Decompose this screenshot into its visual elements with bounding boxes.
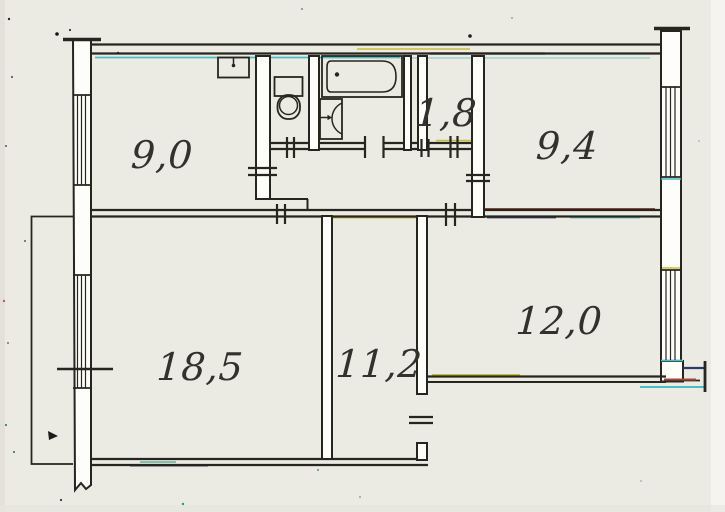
room-label-living-room: 18,5 xyxy=(156,348,245,386)
door-room-11-2 xyxy=(409,417,433,423)
room-label-room-12-0: 12,0 xyxy=(515,302,604,340)
room-label-bedroom-1: 9,4 xyxy=(535,127,599,165)
scan-color-fringes xyxy=(95,45,655,466)
door-living-room xyxy=(277,204,285,224)
balcony-outline xyxy=(32,217,74,465)
kitchen-sink-icon xyxy=(218,58,249,78)
wall-11-2-12-0-lower xyxy=(417,443,427,460)
bathtub-icon xyxy=(322,56,402,97)
floor-plan-svg xyxy=(0,0,725,512)
room-label-storage: 1,8 xyxy=(414,94,478,132)
washbasin-icon xyxy=(320,99,342,139)
window-balcony xyxy=(57,275,113,388)
smudge-mark xyxy=(48,431,58,440)
door-room-12-0 xyxy=(446,203,455,226)
wall-storage-right xyxy=(472,56,484,217)
room-label-kitchen: 9,0 xyxy=(130,136,194,174)
noise-specks xyxy=(3,8,700,505)
room-label-room-11-2: 11,2 xyxy=(335,345,424,383)
wall-living-11-2 xyxy=(322,216,332,459)
wall-bath-shaft xyxy=(404,56,411,150)
door-wc xyxy=(287,137,294,158)
floor-plan-scan: 9,0 1,8 9,4 18,5 11,2 12,0 xyxy=(0,0,725,512)
wall-wc-bath xyxy=(309,56,319,150)
wall-kitchen-wc xyxy=(256,56,270,199)
door-bath xyxy=(365,136,384,158)
toilet-icon xyxy=(275,77,303,119)
right-wall-corner-block xyxy=(661,361,683,382)
